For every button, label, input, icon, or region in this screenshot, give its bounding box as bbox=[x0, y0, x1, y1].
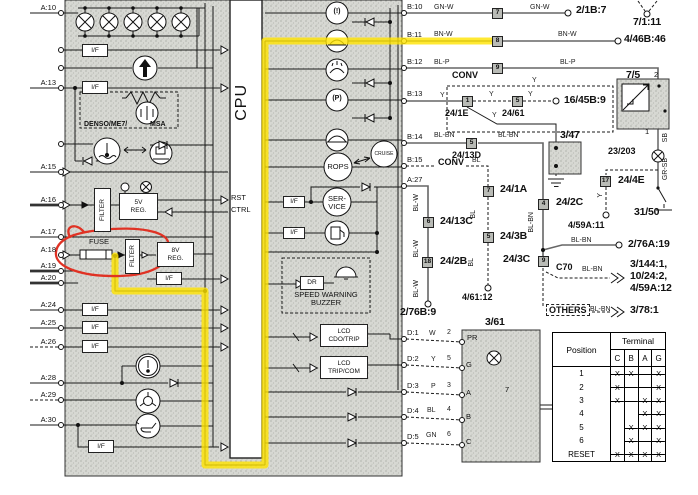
terminal-mark: X bbox=[652, 394, 665, 407]
position-value: 6 bbox=[553, 434, 611, 447]
terminal-mark: X bbox=[611, 380, 625, 393]
terminal-mark: X bbox=[652, 448, 665, 461]
position-value: 2 bbox=[553, 380, 611, 393]
terminal-mark: X bbox=[652, 421, 665, 434]
terminal-mark bbox=[611, 434, 625, 447]
terminal-mark bbox=[639, 434, 653, 447]
coolant-temp-sensor-icon bbox=[94, 138, 120, 164]
terminal-mark bbox=[611, 421, 625, 434]
terminal-mark bbox=[625, 407, 639, 420]
position-value: 1 bbox=[553, 367, 611, 380]
terminal-table-row: 6XX bbox=[553, 434, 665, 447]
terminal-mark: X bbox=[625, 367, 639, 380]
terminal-mark: X bbox=[611, 367, 625, 380]
parking-brake-circle bbox=[326, 89, 348, 111]
position-value: 4 bbox=[553, 407, 611, 420]
terminal-table-row: 2XX bbox=[553, 380, 665, 393]
fuse-symbol bbox=[80, 250, 112, 259]
terminal-mark: X bbox=[652, 407, 665, 420]
terminal-mark: X bbox=[652, 380, 665, 393]
wiring-diagram: A:10A:13A:15A:16A:17A:18A:19A:20A:24A:25… bbox=[0, 0, 698, 495]
unit-3-61 bbox=[460, 330, 541, 462]
speedometer-icon bbox=[136, 354, 160, 378]
instrument-7-5 bbox=[617, 79, 669, 129]
terminal-mark: X bbox=[639, 421, 653, 434]
terminal-mark: X bbox=[625, 434, 639, 447]
up-arrow-indicator-icon bbox=[133, 56, 157, 80]
fuel-pump-icon bbox=[325, 221, 349, 245]
position-value: RESET bbox=[553, 448, 611, 461]
terminal-mark: X bbox=[639, 448, 653, 461]
conv-dashed-box bbox=[447, 86, 613, 132]
col-b: B bbox=[625, 350, 639, 366]
terminal-mark: X bbox=[611, 448, 625, 461]
position-header: Position bbox=[553, 333, 611, 366]
terminal-mark bbox=[611, 407, 625, 420]
terminal-mark: X bbox=[625, 421, 639, 434]
terminal-table-body: 1XXX2XX3XXX4XX5XXX6XXRESETXXXX bbox=[553, 367, 665, 461]
cruise-circle bbox=[371, 141, 397, 167]
wires-thick bbox=[30, 205, 58, 283]
terminal-table-row: 4XX bbox=[553, 407, 665, 420]
rops-circle bbox=[324, 153, 352, 181]
terminal-mark bbox=[625, 394, 639, 407]
wires-colour-coded bbox=[406, 13, 658, 301]
terminal-table-header: Position Terminal C B A G bbox=[553, 333, 665, 367]
position-value: 5 bbox=[553, 421, 611, 434]
terminal-mark: X bbox=[652, 367, 665, 380]
terminal-table-row: RESETXXXX bbox=[553, 448, 665, 461]
terminal-mark bbox=[625, 380, 639, 393]
bulb-23-203 bbox=[652, 150, 664, 162]
switch-3-47 bbox=[549, 142, 581, 174]
col-a: A bbox=[639, 350, 653, 366]
alternator-icon bbox=[136, 389, 160, 413]
cpu-column bbox=[230, 0, 262, 458]
position-value: 3 bbox=[553, 394, 611, 407]
terminal-mark: X bbox=[639, 407, 653, 420]
terminal-mark bbox=[639, 380, 653, 393]
col-c: C bbox=[611, 350, 625, 366]
module-block bbox=[65, 0, 402, 476]
col-g: G bbox=[652, 350, 665, 366]
terminal-table: Position Terminal C B A G 1XXX2XX3XXX4XX… bbox=[552, 332, 666, 462]
terminal-table-row: 1XXX bbox=[553, 367, 665, 380]
terminal-mark: X bbox=[652, 434, 665, 447]
terminal-mark: X bbox=[639, 394, 653, 407]
terminal-table-row: 5XXX bbox=[553, 421, 665, 434]
brake-warning-circle bbox=[326, 2, 348, 24]
terminal-header: Terminal bbox=[611, 333, 665, 350]
terminal-mark: X bbox=[625, 448, 639, 461]
terminal-mark bbox=[639, 367, 653, 380]
service-circle bbox=[323, 188, 351, 216]
oil-pressure-icon bbox=[136, 414, 160, 438]
terminal-mark: X bbox=[611, 394, 625, 407]
terminal-table-row: 3XXX bbox=[553, 394, 665, 407]
